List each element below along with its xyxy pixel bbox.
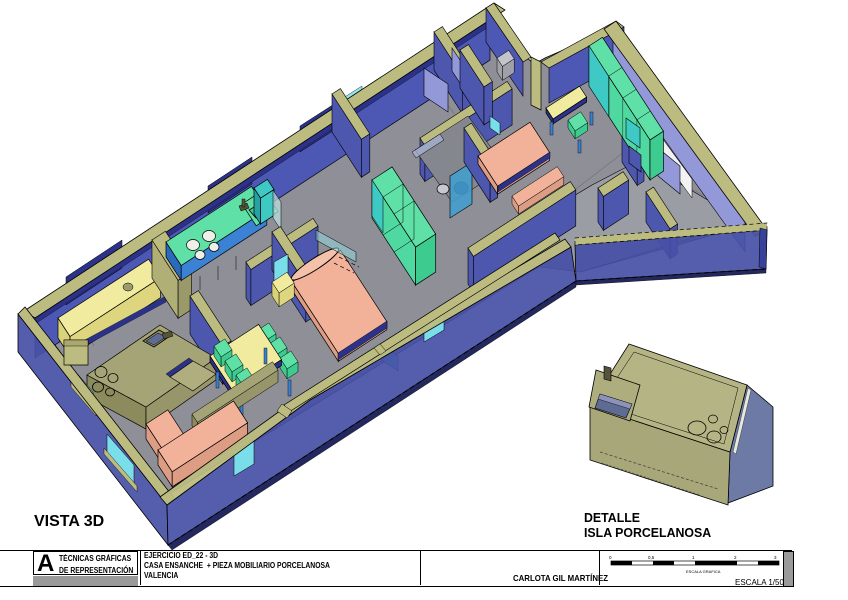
svg-text:ESCALA GRAFICA: ESCALA GRAFICA — [686, 569, 721, 574]
svg-text:3: 3 — [774, 555, 777, 560]
svg-text:0: 0 — [609, 555, 612, 560]
svg-text:0,5: 0,5 — [648, 555, 655, 560]
svg-text:2: 2 — [734, 555, 737, 560]
svg-text:1: 1 — [692, 555, 695, 560]
